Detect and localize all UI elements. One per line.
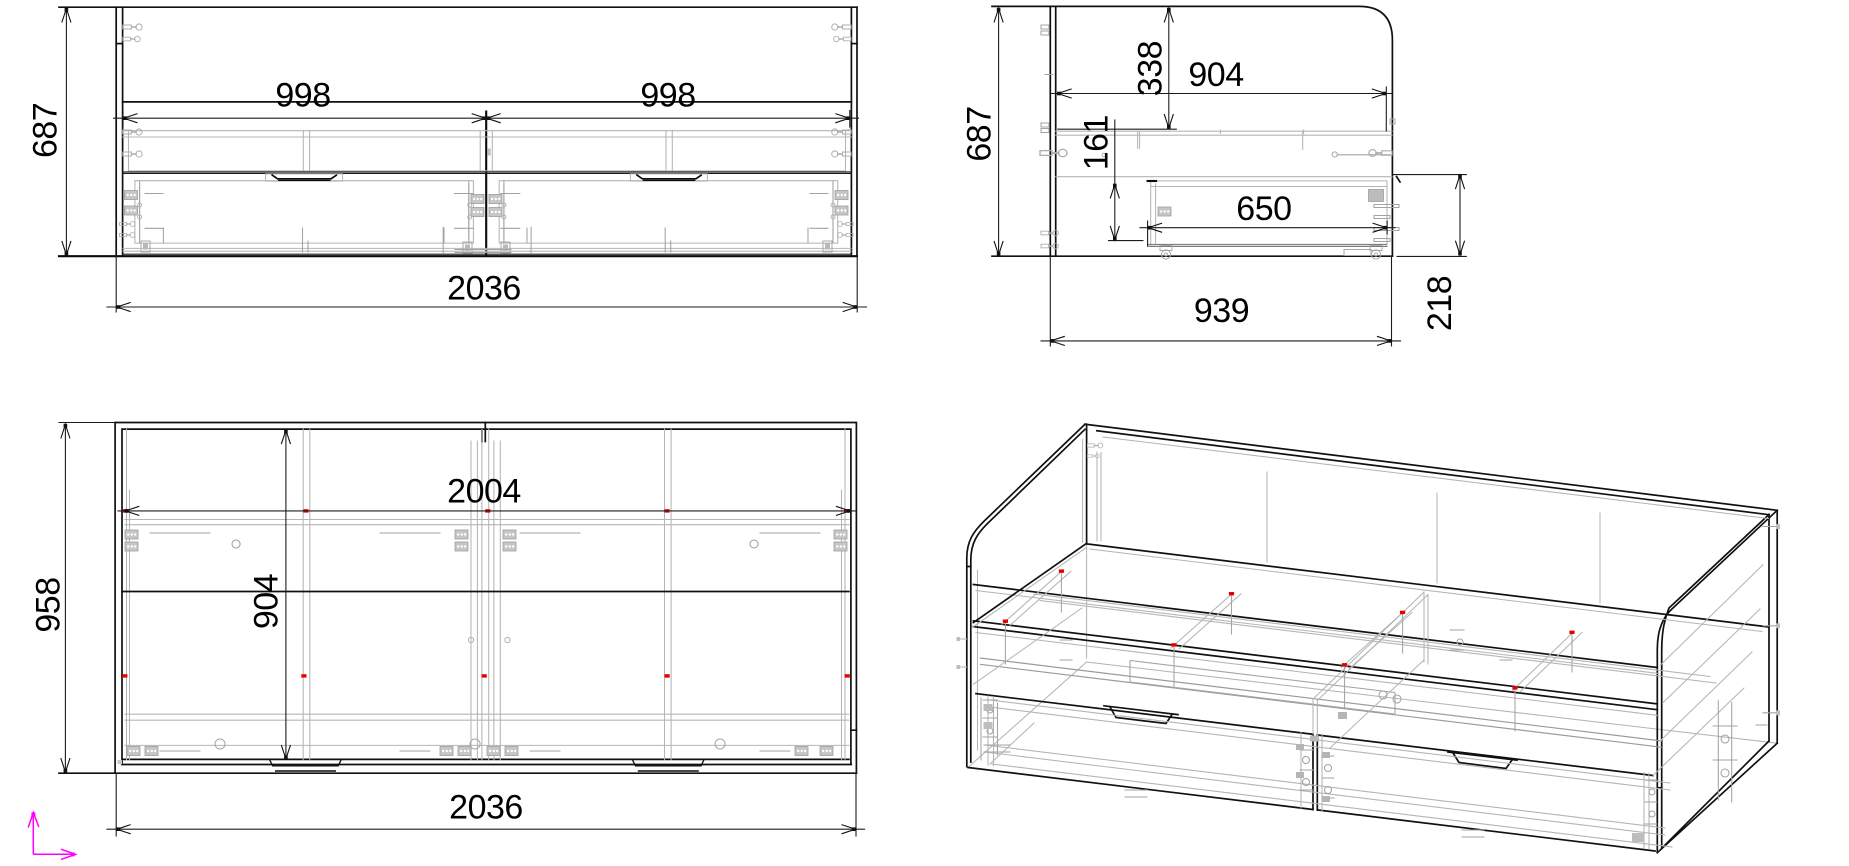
- svg-text:687: 687: [961, 106, 999, 161]
- svg-text:161: 161: [1077, 115, 1115, 170]
- svg-text:338: 338: [1132, 41, 1170, 96]
- svg-text:218: 218: [1421, 276, 1459, 331]
- svg-text:687: 687: [27, 103, 65, 158]
- svg-text:998: 998: [275, 77, 330, 115]
- svg-text:650: 650: [1236, 190, 1291, 228]
- svg-text:904: 904: [248, 574, 286, 629]
- svg-text:2036: 2036: [447, 270, 521, 308]
- svg-text:2004: 2004: [447, 473, 521, 511]
- svg-text:939: 939: [1194, 292, 1249, 330]
- svg-text:904: 904: [1188, 56, 1243, 94]
- svg-text:958: 958: [30, 577, 68, 632]
- svg-text:998: 998: [640, 77, 695, 115]
- svg-text:2036: 2036: [449, 789, 523, 827]
